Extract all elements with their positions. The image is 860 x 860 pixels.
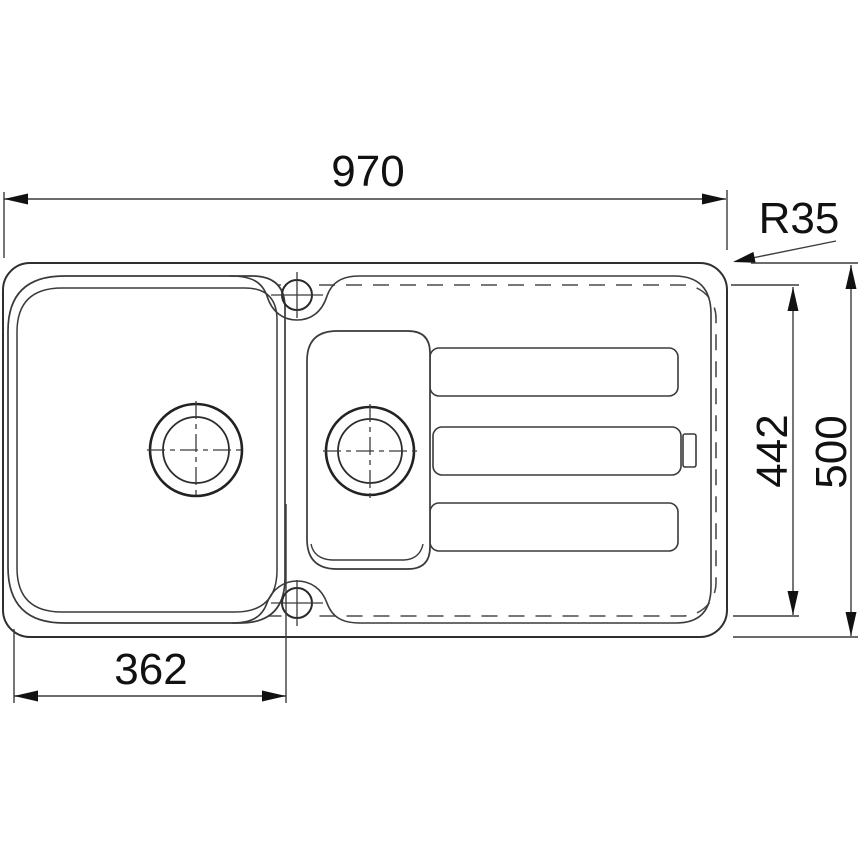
- dimension-label-442: 442: [748, 414, 797, 487]
- drainer-groove-notch: [683, 434, 696, 467]
- arrowhead-left: [4, 194, 28, 205]
- dimension-corner-radius: [733, 241, 836, 263]
- arrowhead: [733, 252, 756, 263]
- drainer-grooves: [430, 348, 696, 551]
- arrowhead-right: [702, 194, 726, 205]
- dimension-label-500: 500: [807, 415, 856, 488]
- arrowhead-up: [846, 265, 857, 289]
- dimension-label-r35: R35: [759, 194, 840, 243]
- dimension-label-362: 362: [114, 645, 187, 694]
- main-bowl-rim: [8, 276, 285, 623]
- arrowhead-right: [262, 691, 286, 702]
- sink-dimension-diagram: 970 R35 442 500 362: [0, 0, 860, 860]
- arrowhead-left: [14, 691, 38, 702]
- drainer-groove-2: [433, 427, 681, 475]
- arrowhead-up: [788, 287, 799, 311]
- technical-drawing-canvas: 970 R35 442 500 362: [0, 0, 860, 860]
- arrowhead-down: [846, 612, 857, 636]
- drainer-groove-3: [430, 503, 678, 551]
- dimension-overall-width: [4, 190, 727, 258]
- arrowhead-down: [788, 591, 799, 615]
- drainer-groove-1: [430, 348, 678, 396]
- dimension-label-970: 970: [331, 147, 404, 196]
